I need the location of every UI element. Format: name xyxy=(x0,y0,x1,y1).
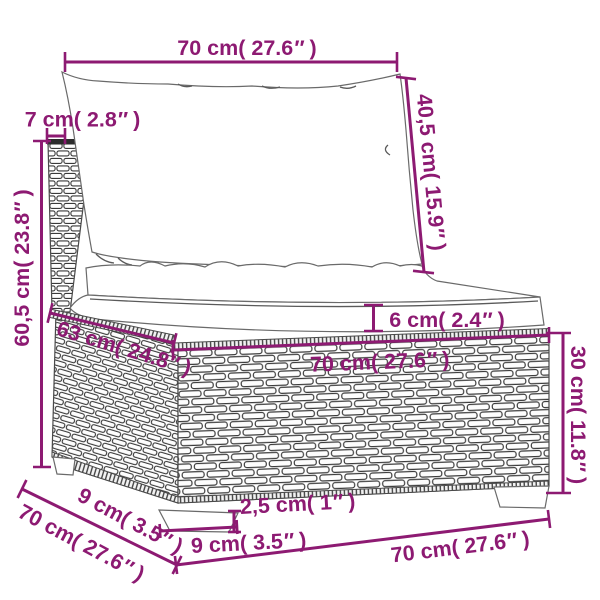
svg-text:6 cm( 2.4″ ): 6 cm( 2.4″ ) xyxy=(389,308,504,332)
svg-text:60,5 cm( 23.8″ ): 60,5 cm( 23.8″ ) xyxy=(10,189,34,346)
svg-text:7 cm( 2.8″ ): 7 cm( 2.8″ ) xyxy=(25,108,140,132)
svg-text:30 cm( 11.8″ ): 30 cm( 11.8″ ) xyxy=(566,346,590,484)
svg-text:70 cm( 27.6″ ): 70 cm( 27.6″ ) xyxy=(177,36,316,60)
